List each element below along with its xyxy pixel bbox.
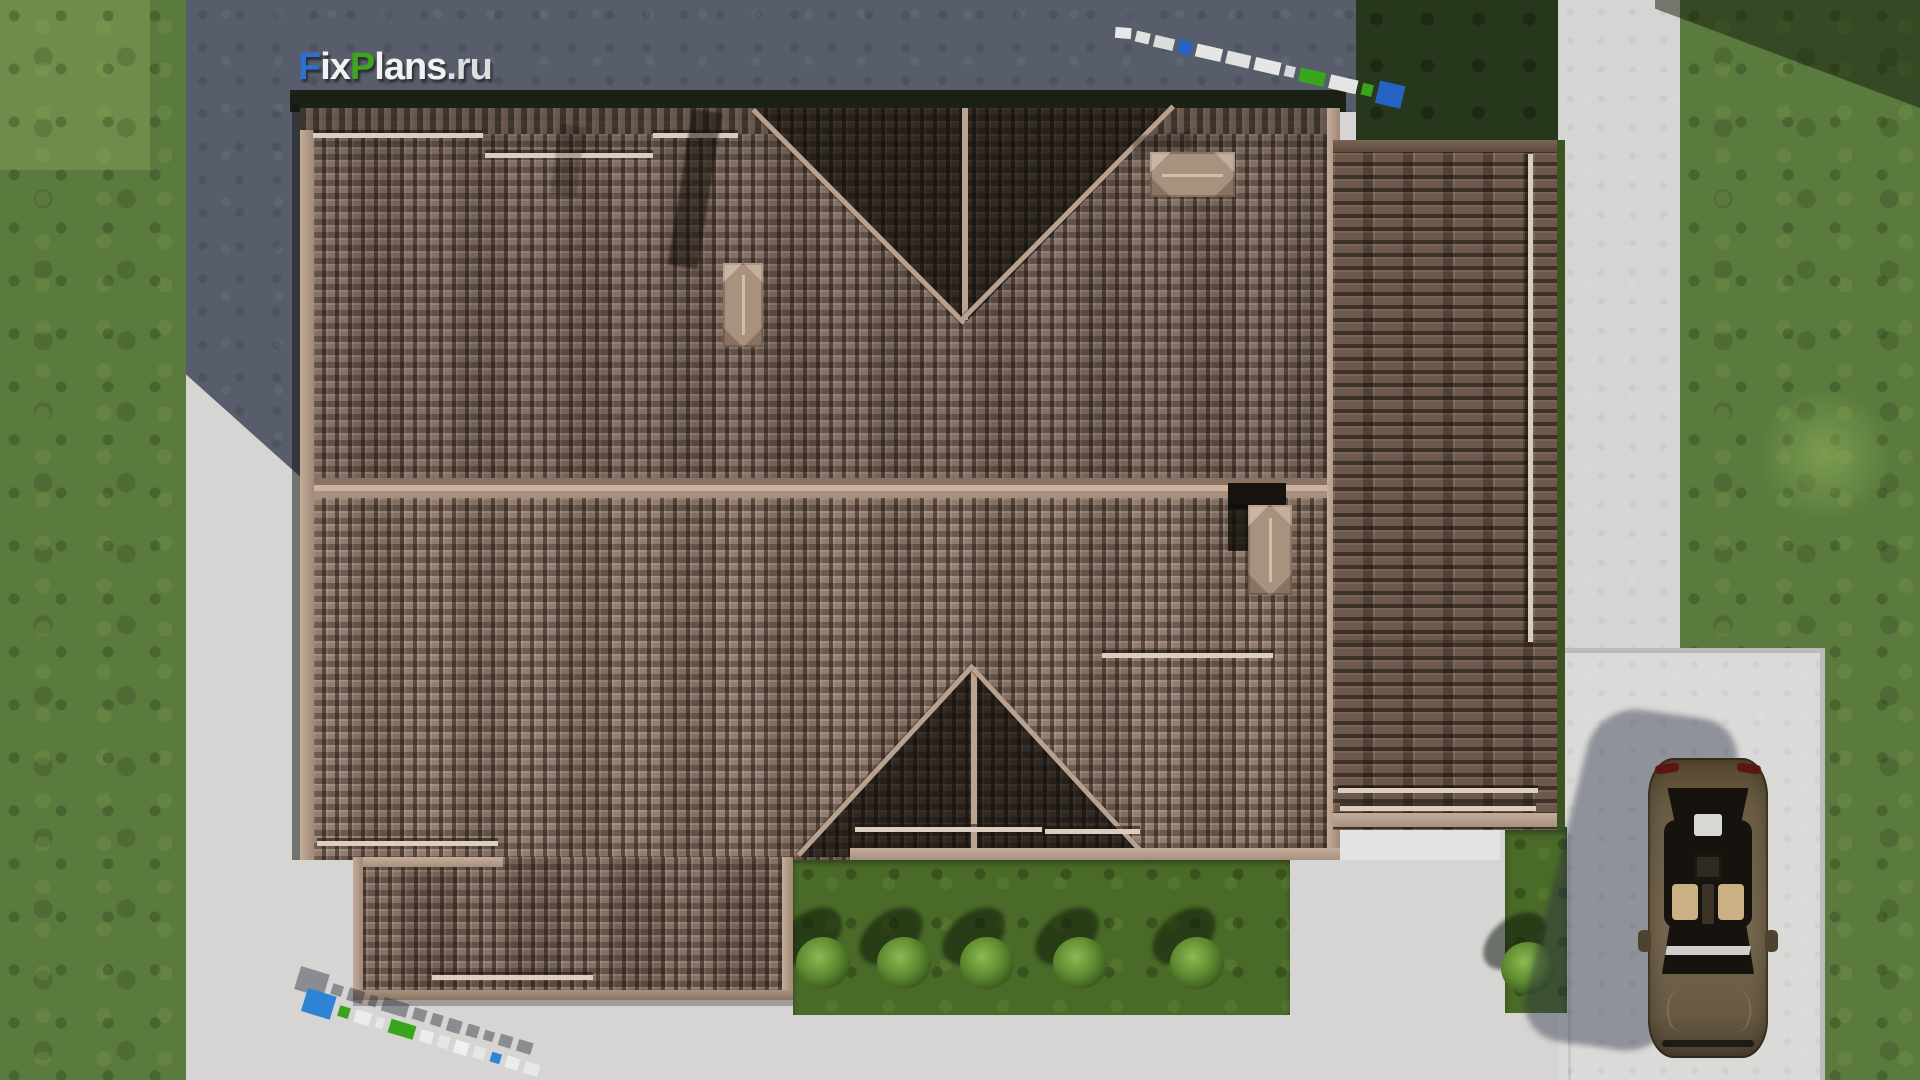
snow-guard xyxy=(855,827,1042,832)
car-seat xyxy=(1672,884,1698,920)
snow-guard xyxy=(1045,829,1140,834)
wing-fascia-top xyxy=(1333,140,1557,152)
car-headrest xyxy=(1694,814,1722,836)
roof-middle-ridge xyxy=(300,478,1340,498)
snow-guard-vertical xyxy=(1528,154,1533,642)
pavement-shadow-left xyxy=(186,0,302,520)
roof-fascia-bottom xyxy=(850,848,1340,860)
skylight-cap xyxy=(1248,505,1292,595)
snow-guard xyxy=(317,841,498,846)
brand-logo: FixPlans.ru xyxy=(298,46,492,89)
roof-top-gable-ridge xyxy=(962,108,968,320)
wing-fascia-right xyxy=(782,857,793,1000)
roof-fascia-left xyxy=(300,130,314,860)
snow-guard xyxy=(432,975,593,980)
snow-guard xyxy=(1340,806,1536,811)
skylight-cap xyxy=(1150,152,1235,197)
aerial-render-scene: FixPlans.ru xyxy=(0,0,1920,1080)
brand-logo-segment: lans xyxy=(374,46,446,88)
wing-fascia-bottom xyxy=(1333,813,1557,827)
brand-logo-segment: ix xyxy=(320,46,350,88)
grass-shadowed-top-right xyxy=(1356,0,1558,146)
car-sunroof-console xyxy=(1694,854,1722,880)
wall-shadow-left xyxy=(292,104,300,860)
car xyxy=(1648,758,1768,1058)
grass-corner-patch xyxy=(0,0,150,170)
bush xyxy=(1170,937,1224,989)
brand-logo-segment: P xyxy=(350,46,374,88)
car-center-console xyxy=(1702,884,1714,924)
bush xyxy=(796,937,850,989)
bush xyxy=(960,937,1014,989)
bush xyxy=(1053,937,1107,989)
snow-guard xyxy=(1338,788,1538,793)
wing-seam xyxy=(1333,640,1557,643)
brand-logo-segment: .ru xyxy=(446,46,492,88)
snow-guard xyxy=(313,133,483,138)
roof-main xyxy=(300,108,1340,860)
car-mirror-left xyxy=(1638,930,1651,952)
roof-bottom-left-wing xyxy=(353,857,793,1000)
roof-right-wing xyxy=(1333,140,1557,830)
car-cabin-roof xyxy=(1664,820,1752,928)
snow-guard xyxy=(1102,653,1273,658)
brand-logo-segment: F xyxy=(298,46,320,88)
car-mirror-right xyxy=(1765,930,1778,952)
wing-fascia-bottom xyxy=(353,990,793,1000)
skylight-cap xyxy=(723,263,763,347)
chimney-block-shadow xyxy=(1228,503,1250,551)
wing-fascia-left xyxy=(353,857,363,1000)
grass-sunlit-patch xyxy=(1730,360,1920,550)
wing-step-fascia xyxy=(353,857,503,867)
car-front-trim xyxy=(1662,1040,1754,1047)
car-windshield-reflection xyxy=(1665,946,1751,955)
path-right xyxy=(1558,0,1680,648)
car-seat xyxy=(1718,884,1744,920)
bush xyxy=(877,937,931,989)
eave-shadow xyxy=(353,1000,793,1006)
